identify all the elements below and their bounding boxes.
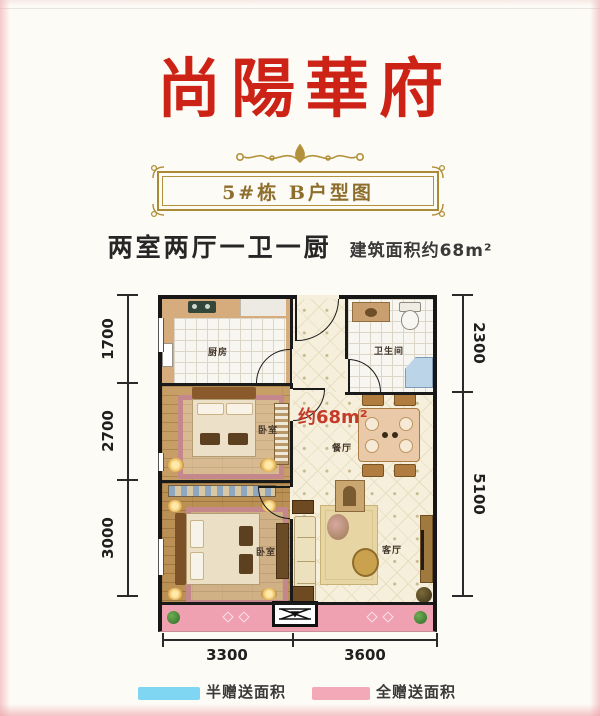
dim-tick — [117, 294, 138, 296]
bedroom1-lamp-icon — [167, 458, 184, 472]
bedroom2-dresser — [276, 523, 289, 579]
bathroom-label: 卫生间 — [374, 344, 404, 357]
living-side-table — [335, 480, 365, 512]
window-icon — [158, 318, 164, 352]
dim-tick — [452, 595, 473, 597]
dim-right-2300: 2300 — [472, 313, 488, 373]
dim-left-1700: 1700 — [99, 309, 115, 369]
sofa-end-table — [292, 500, 314, 514]
dim-bottom-3300: 3300 — [197, 646, 257, 662]
dim-tick — [117, 479, 138, 481]
kitchen-counter — [240, 299, 286, 316]
plant-icon — [414, 611, 427, 624]
area-text: 建筑面积约68m² — [350, 236, 493, 261]
approx-area-label: 约68m² — [298, 403, 368, 429]
bedroom2-lamp-icon — [167, 500, 183, 512]
kitchen-door-leaf — [290, 349, 292, 383]
dim-tick — [452, 294, 473, 296]
bedroom1-headboard — [192, 387, 256, 399]
banner-frame-inner: 5#栋 B户型图 — [162, 176, 434, 206]
floor-plan: 厨房 卫生间 卧室 卧室 — [158, 295, 437, 632]
bedroom2-label: 卧室 — [256, 545, 276, 558]
living-label: 客厅 — [382, 543, 402, 556]
dim-line-left — [127, 295, 129, 597]
dim-line-bottom — [162, 639, 438, 641]
wall — [345, 392, 433, 395]
crown-ornament-icon — [225, 144, 375, 170]
layout-text: 两室两厅一卫一厨 — [108, 228, 332, 264]
legend-label-full-bonus: 全赠送面积 — [376, 681, 456, 702]
dim-line-right — [462, 295, 464, 597]
frame-corner-flourish-icon — [150, 164, 166, 180]
dining-chair-icon — [362, 464, 384, 477]
window-icon — [158, 453, 164, 471]
bedroom1-label: 卧室 — [258, 423, 278, 436]
bedroom1-lamp-icon — [260, 458, 277, 472]
floorplan-poster: { "header": { "title": "尚陽華府", "banner":… — [0, 0, 600, 716]
legend-swatch-full-bonus — [312, 687, 370, 700]
coffee-table-icon — [352, 548, 379, 577]
top-hairline — [0, 8, 600, 9]
dim-left-3000: 3000 — [99, 508, 115, 568]
banner-frame: 5#栋 B户型图 — [157, 171, 439, 211]
dim-tick — [117, 595, 138, 597]
dim-right-5100: 5100 — [472, 464, 488, 524]
frame-corner-flourish-icon — [430, 202, 446, 218]
dim-left-2700: 2700 — [99, 401, 115, 461]
window-icon — [158, 539, 164, 575]
stove-icon — [188, 301, 216, 313]
wall — [162, 480, 293, 483]
balcony-diamond-icon — [382, 611, 393, 622]
dim-tick — [117, 382, 138, 384]
dim-tick — [292, 633, 294, 647]
banner-text: 5#栋 B户型图 — [222, 178, 374, 205]
bedroom2-bed — [186, 513, 260, 585]
dim-tick — [452, 391, 473, 393]
balcony — [162, 605, 433, 631]
bedroom2-lamp-icon — [261, 588, 277, 600]
wall — [290, 299, 293, 349]
page-title: 尚陽華府 — [0, 44, 600, 136]
frame-corner-flourish-icon — [430, 164, 446, 180]
dim-tick — [162, 633, 164, 647]
plant-icon — [416, 587, 432, 603]
dim-tick — [436, 633, 438, 647]
dining-chair-icon — [394, 464, 416, 477]
wall — [162, 602, 433, 605]
bedroom1-bed — [192, 399, 256, 457]
plant-icon — [167, 611, 180, 624]
edge-tint — [0, 704, 600, 716]
balcony-diamond-icon — [366, 611, 377, 622]
legend-swatch-half-bonus — [138, 687, 200, 700]
vanity-sink-icon — [352, 302, 390, 322]
edge-tint — [0, 0, 600, 6]
frame-corner-flourish-icon — [150, 202, 166, 218]
wall — [345, 299, 348, 359]
toilet-icon — [398, 302, 420, 329]
bedroom2-lamp-icon — [167, 588, 183, 600]
bedroom2-headboard — [175, 513, 186, 585]
sofa-end-table — [292, 586, 314, 602]
legend-label-half-bonus: 半赠送面积 — [206, 681, 286, 702]
balcony-diamond-icon — [238, 611, 249, 622]
kitchen-label: 厨房 — [208, 345, 228, 358]
wall — [290, 421, 293, 487]
wall — [162, 383, 293, 386]
tv-cabinet-icon — [420, 515, 433, 583]
dining-label: 餐厅 — [332, 441, 352, 454]
dim-bottom-3600: 3600 — [335, 646, 395, 662]
subtitle-row: 两室两厅一卫一厨 建筑面积约68m² — [0, 228, 600, 268]
balcony-diamond-icon — [222, 611, 233, 622]
wall — [290, 519, 293, 605]
